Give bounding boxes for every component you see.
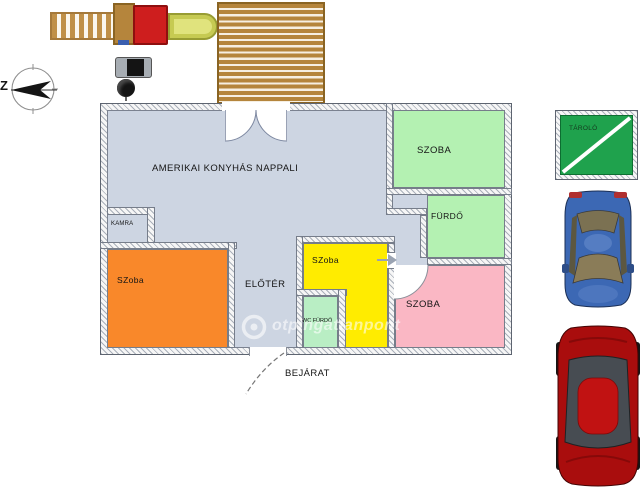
room-label-szoba-orange: SZoba [117,275,144,285]
storage-sign: TÁROLÓ [555,110,638,180]
red-car-icon [556,324,640,488]
room-bathroom [427,195,505,258]
playground-tower-icon [133,5,168,45]
wooden-deck-icon [217,2,325,104]
wall-corridor [386,208,427,215]
playground-ladder-icon [50,12,116,40]
playground-slide-icon [168,13,218,40]
entrance-label: BEJÁRAT [285,369,330,379]
wall-orange-right [228,242,235,348]
double-door-icon [223,110,289,144]
storage-sign-face: TÁROLÓ [560,115,633,175]
compass-label: Z [0,81,8,91]
watermark-logo-icon [240,313,268,341]
blue-car-icon [562,188,634,310]
room-label-szoba-yellow: SZoba [312,255,339,265]
storage-sign-label: TÁROLÓ [569,125,598,132]
playground-detail-icon [118,40,129,45]
room-label-furdo: FÜRDŐ [431,211,463,221]
room-label-eloter: ELŐTÉR [245,280,285,290]
pink-room-door-icon [394,265,430,301]
playground-platform-icon [113,3,135,45]
wall-pink-top [427,258,512,265]
kettle-grill-stem [125,97,127,101]
grill-firebox-icon [127,59,144,76]
wall-orange-top [100,242,237,249]
room-label-kamra: KAMRA [111,219,133,229]
compass-icon [0,62,62,120]
entrance-door-swing-icon [242,352,290,396]
floor-plan-page: Z AMERIKAI KONYHÁS [0,0,640,492]
wall-greenroom-bottom [386,188,512,195]
door-direction-arrow-icon [376,252,398,268]
room-label-nappali: AMERIKAI KONYHÁS NAPPALI [152,164,298,174]
kettle-grill-icon [117,79,135,97]
room-label-szoba-pink: SZOBA [406,300,440,310]
watermark-text: otpingatlanpont [272,317,400,335]
room-bedroom-orange [107,249,228,348]
wall-greenroom-left [386,103,393,215]
wall-bathroom-left [420,215,427,258]
wall-yellow-top [296,236,395,243]
room-label-szoba-green: SZOBA [417,146,451,156]
